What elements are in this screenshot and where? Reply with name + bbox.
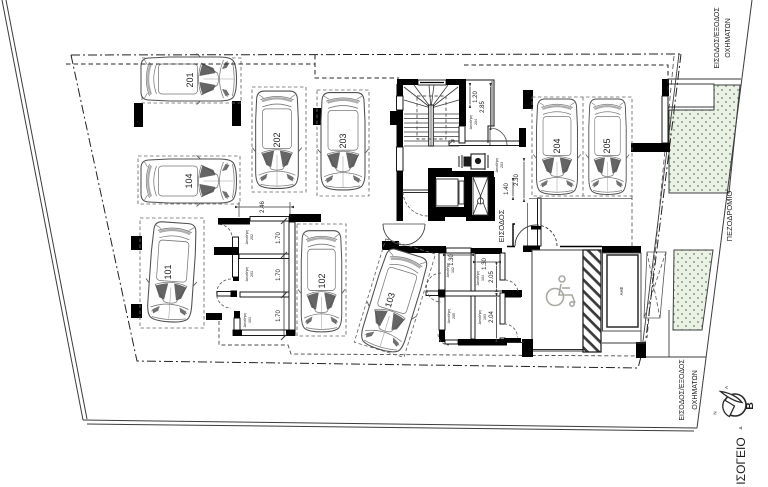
svg-text:Αποθήκη: Αποθήκη bbox=[245, 230, 249, 245]
svg-text:Αποθήκη: Αποθήκη bbox=[243, 313, 247, 328]
svg-text:201: 201 bbox=[185, 72, 195, 87]
svg-text:204: 204 bbox=[552, 138, 562, 153]
svg-text:ΕΙΣΟΔΟΣ: ΕΙΣΟΔΟΣ bbox=[497, 209, 506, 242]
svg-text:1.20: 1.20 bbox=[473, 91, 479, 103]
svg-text:1.70: 1.70 bbox=[276, 310, 282, 322]
svg-text:Αποθήκη: Αποθήκη bbox=[245, 267, 249, 282]
svg-text:Αποθήκη: Αποθήκη bbox=[476, 271, 480, 286]
svg-text:201: 201 bbox=[250, 271, 254, 277]
svg-text:101: 101 bbox=[248, 317, 252, 323]
svg-text:1.30: 1.30 bbox=[449, 254, 455, 266]
svg-text:202: 202 bbox=[250, 234, 254, 240]
svg-text:Αποθήκη: Αποθήκη bbox=[495, 158, 499, 173]
svg-text:ΟΧΗΜΑΤΩΝ: ΟΧΗΜΑΤΩΝ bbox=[725, 18, 732, 58]
svg-text:Β: Β bbox=[744, 402, 756, 410]
svg-text:205: 205 bbox=[452, 313, 456, 319]
svg-text:2.85: 2.85 bbox=[480, 101, 486, 113]
svg-text:1.70: 1.70 bbox=[276, 269, 282, 281]
svg-text:102: 102 bbox=[451, 267, 455, 273]
svg-text:205: 205 bbox=[602, 138, 612, 153]
svg-text:Α: Α bbox=[724, 386, 729, 389]
svg-text:2.30: 2.30 bbox=[514, 174, 520, 186]
svg-text:2.05: 2.05 bbox=[489, 271, 495, 283]
svg-text:1.70: 1.70 bbox=[276, 232, 282, 244]
svg-text:ΑΗΕ: ΑΗΕ bbox=[619, 286, 624, 295]
svg-text:104: 104 bbox=[481, 275, 485, 281]
svg-text:ΟΧΗΜΑΤΩΝ: ΟΧΗΜΑΤΩΝ bbox=[692, 370, 699, 410]
svg-text:203: 203 bbox=[500, 162, 504, 168]
svg-text:ΕΙΣΟΔΟΣ/ΕΞΟΔΟΣ: ΕΙΣΟΔΟΣ/ΕΞΟΔΟΣ bbox=[714, 7, 721, 69]
svg-text:Ν: Ν bbox=[713, 411, 718, 414]
svg-text:2.04: 2.04 bbox=[489, 311, 495, 323]
svg-text:ΠΕΖΟΔΡΟΜΙΟ: ΠΕΖΟΔΡΟΜΙΟ bbox=[725, 190, 734, 241]
svg-text:Αποθήκη: Αποθήκη bbox=[447, 309, 451, 324]
svg-text:104: 104 bbox=[184, 173, 194, 188]
svg-text:Αποθήκη: Αποθήκη bbox=[478, 310, 482, 325]
svg-text:202: 202 bbox=[272, 132, 282, 147]
svg-text:ΕΙΣΟΔΟΣ/ΕΞΟΔΟΣ: ΕΙΣΟΔΟΣ/ΕΞΟΔΟΣ bbox=[679, 359, 686, 421]
svg-text:ΙΣΟΓΕΙΟ: ΙΣΟΓΕΙΟ bbox=[734, 437, 748, 484]
svg-text:2.46: 2.46 bbox=[260, 201, 266, 213]
svg-text:203: 203 bbox=[338, 133, 348, 148]
svg-text:204: 204 bbox=[474, 119, 478, 125]
svg-text:Αποθήκη: Αποθήκη bbox=[469, 115, 473, 130]
svg-text:102: 102 bbox=[317, 273, 327, 288]
svg-text:1.30: 1.30 bbox=[482, 258, 488, 270]
svg-text:101: 101 bbox=[163, 264, 173, 279]
svg-text:103: 103 bbox=[483, 314, 487, 320]
svg-text:Δ: Δ bbox=[738, 426, 743, 429]
svg-text:1.40: 1.40 bbox=[504, 183, 510, 195]
